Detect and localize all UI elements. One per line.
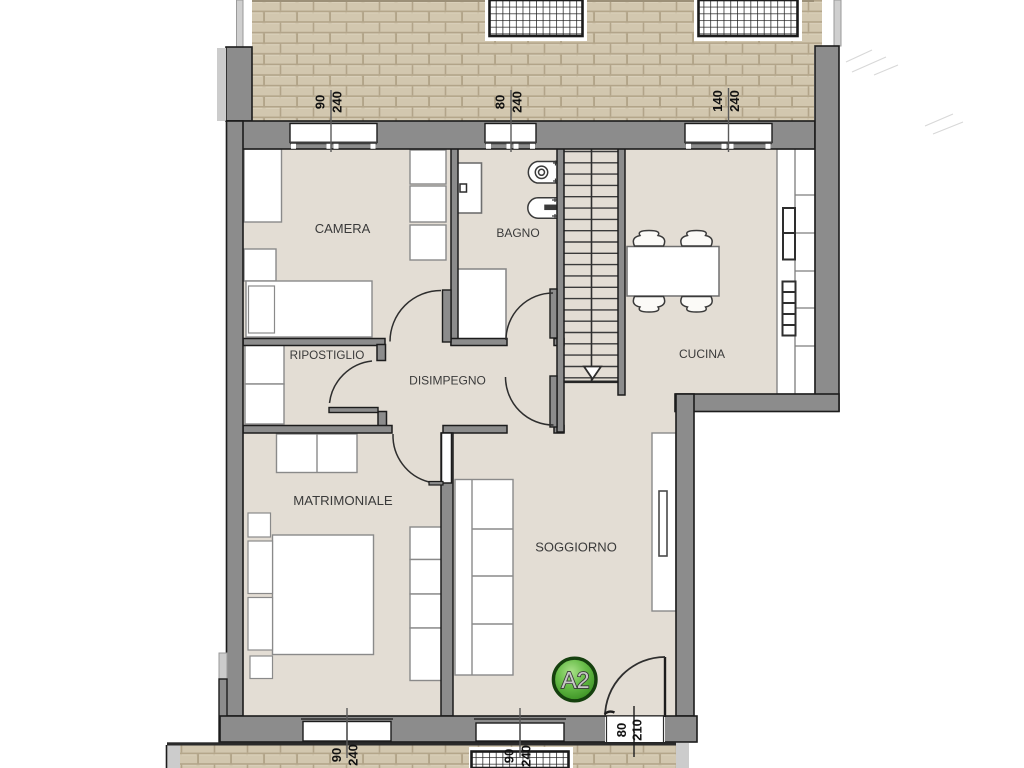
svg-text:240: 240 (727, 90, 742, 112)
svg-text:240: 240 (510, 91, 525, 113)
svg-text:210: 210 (630, 719, 645, 741)
svg-text:RIPOSTIGLIO: RIPOSTIGLIO (290, 349, 365, 362)
svg-text:DISIMPEGNO: DISIMPEGNO (409, 374, 486, 388)
svg-text:240: 240 (519, 745, 534, 767)
svg-text:CUCINA: CUCINA (679, 347, 725, 361)
svg-text:SOGGIORNO: SOGGIORNO (535, 540, 617, 555)
svg-text:80: 80 (614, 723, 629, 737)
svg-text:CAMERA: CAMERA (315, 221, 371, 236)
svg-text:BAGNO: BAGNO (496, 226, 539, 240)
svg-text:140: 140 (710, 90, 725, 112)
svg-text:90: 90 (313, 95, 328, 109)
svg-text:80: 80 (493, 95, 508, 109)
svg-text:MATRIMONIALE: MATRIMONIALE (293, 493, 393, 508)
svg-text:A2: A2 (561, 667, 589, 693)
svg-text:90: 90 (502, 749, 517, 763)
svg-text:240: 240 (346, 744, 361, 766)
svg-text:240: 240 (330, 91, 345, 113)
svg-text:90: 90 (329, 748, 344, 762)
